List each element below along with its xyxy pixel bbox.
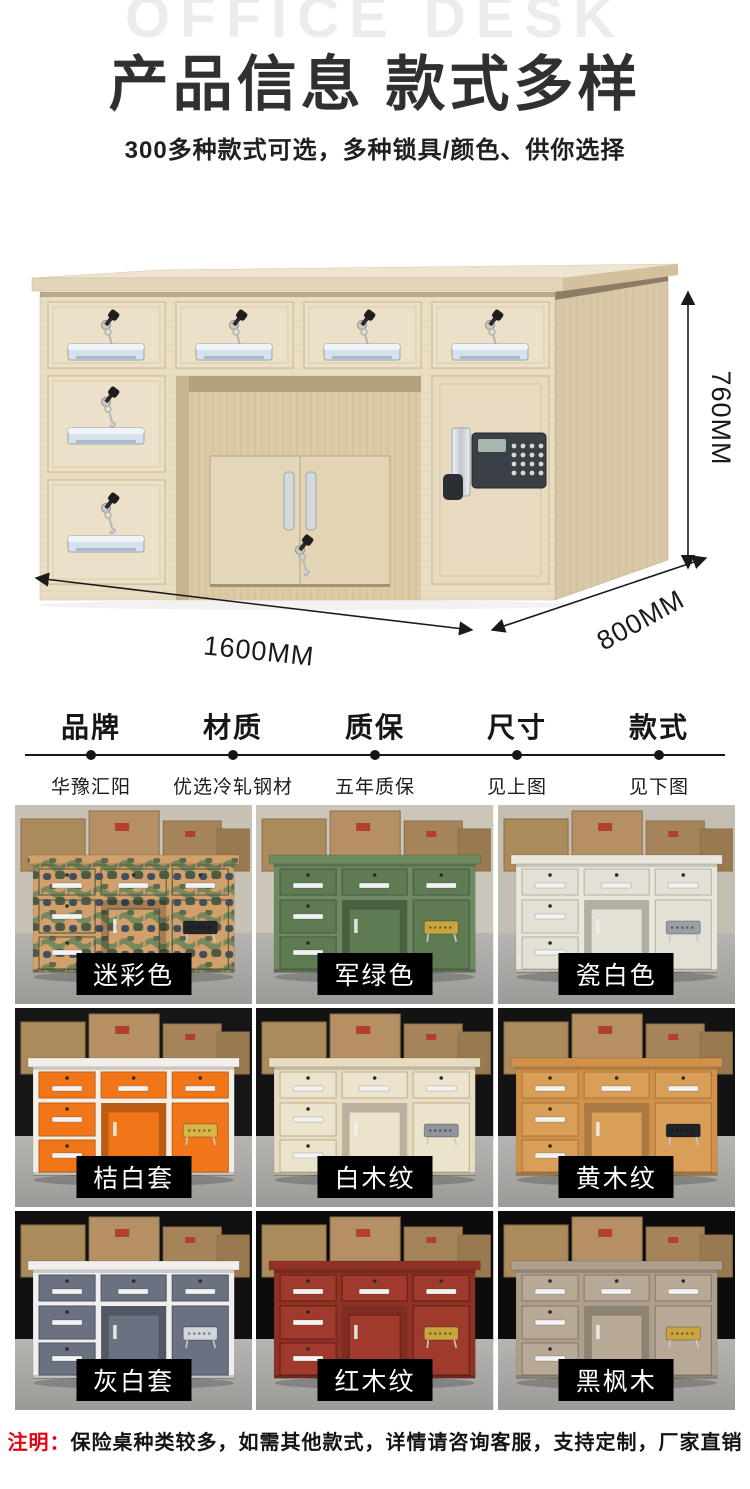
style-grid: 迷彩色 军绿色 瓷白色 桔白套 白木纹 黄木纹 灰白套 红木纹 xyxy=(15,805,735,1410)
style-label: 红木纹 xyxy=(317,1359,432,1401)
style-card-black-maple: 黑枫木 xyxy=(498,1211,735,1410)
style-label: 迷彩色 xyxy=(76,953,191,995)
style-card-white-woodgrain: 白木纹 xyxy=(256,1008,493,1207)
dimension-label-depth: 800MM xyxy=(592,584,690,656)
spec-value: 华豫汇阳 xyxy=(20,772,162,799)
style-label: 黑枫木 xyxy=(559,1359,674,1401)
spec-label: 质保 xyxy=(304,706,446,746)
spec-col-size: 尺寸 见上图 xyxy=(446,698,588,799)
style-card-gray-white: 灰白套 xyxy=(15,1211,252,1410)
spec-label: 材质 xyxy=(162,706,304,746)
product-hero-image: 760MM 1600MM 800MM xyxy=(0,228,750,698)
spec-value: 见上图 xyxy=(446,772,588,799)
spec-dot xyxy=(370,750,380,760)
spec-col-material: 材质 优选冷轧钢材 xyxy=(162,698,304,799)
spec-col-brand: 品牌 华豫汇阳 xyxy=(20,698,162,799)
style-card-camouflage: 迷彩色 xyxy=(15,805,252,1004)
product-info-page: OFFICE DESK 产品信息 款式多样 300多种款式可选，多种锁具/颜色、… xyxy=(0,0,750,1489)
spec-dot xyxy=(86,750,96,760)
spec-col-warranty: 质保 五年质保 xyxy=(304,698,446,799)
spec-dot xyxy=(512,750,522,760)
page-title: 产品信息 款式多样 xyxy=(0,36,750,123)
style-label: 桔白套 xyxy=(76,1156,191,1198)
spec-table: 品牌 华豫汇阳 材质 优选冷轧钢材 质保 五年质保 尺寸 见上图 款式 xyxy=(0,698,750,798)
page-subtitle: 300多种款式可选，多种锁具/颜色、供你选择 xyxy=(0,130,750,165)
style-label: 黄木纹 xyxy=(559,1156,674,1198)
spec-dot xyxy=(228,750,238,760)
spec-value: 见下图 xyxy=(588,772,730,799)
spec-col-style: 款式 见下图 xyxy=(588,698,730,799)
dimension-label-width: 1600MM xyxy=(202,630,316,671)
style-label: 白木纹 xyxy=(317,1156,432,1198)
style-card-orange-white: 桔白套 xyxy=(15,1008,252,1207)
footnote: 注明：保险桌种类较多，如需其他款式，详情请咨询客服，支持定制，厂家直销 xyxy=(0,1426,750,1455)
style-card-red-woodgrain: 红木纹 xyxy=(256,1211,493,1410)
footnote-prefix: 注明： xyxy=(8,1432,71,1454)
style-label: 灰白套 xyxy=(76,1359,191,1401)
spec-label: 款式 xyxy=(588,706,730,746)
dimension-label-height: 760MM xyxy=(706,370,736,465)
footnote-text: 保险桌种类较多，如需其他款式，详情请咨询客服，支持定制，厂家直销 xyxy=(71,1432,743,1454)
spec-value: 五年质保 xyxy=(304,772,446,799)
style-card-yellow-woodgrain: 黄木纹 xyxy=(498,1008,735,1207)
style-label: 瓷白色 xyxy=(559,953,674,995)
style-card-army-green: 军绿色 xyxy=(256,805,493,1004)
spec-dot xyxy=(654,750,664,760)
spec-value: 优选冷轧钢材 xyxy=(162,772,304,799)
spec-label: 品牌 xyxy=(20,706,162,746)
spec-label: 尺寸 xyxy=(446,706,588,746)
style-card-porcelain-white: 瓷白色 xyxy=(498,805,735,1004)
style-label: 军绿色 xyxy=(317,953,432,995)
